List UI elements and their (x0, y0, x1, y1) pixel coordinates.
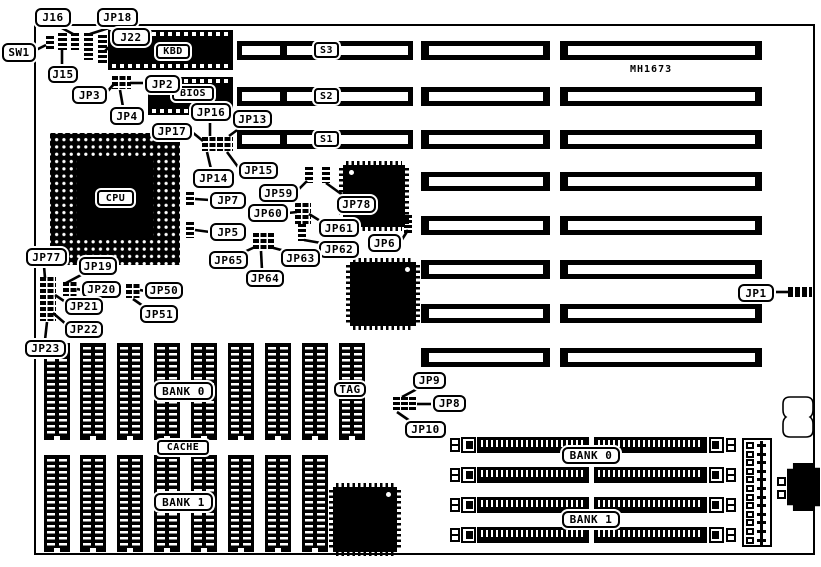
slot-label-s3: S3 (314, 42, 339, 58)
callout-jp65: JP65 (209, 251, 248, 269)
simm-3-end-right (726, 498, 736, 512)
sw1-switch (46, 36, 54, 49)
latch-hook (466, 501, 473, 509)
simm-bank0-label: BANK 0 (562, 447, 620, 464)
callout-jp22: JP22 (65, 321, 103, 338)
callout-jp63: JP63 (281, 249, 320, 267)
callout-jp23: JP23 (25, 340, 66, 357)
dip-notch (164, 548, 170, 552)
callout-jp3: JP3 (72, 86, 107, 104)
dip-notch (238, 548, 244, 552)
power-pin-socket (746, 502, 754, 509)
motherboard-diagram: MH1673 KBD BIOS CPU BANK 0 TAG CACHE BAN… (0, 0, 821, 567)
din-tab-lower (777, 490, 786, 499)
keyboard-din-connector (787, 463, 820, 511)
power-pin-socket (746, 476, 754, 483)
callout-jp8: JP8 (433, 395, 466, 412)
slot-window (242, 135, 280, 144)
callout-jp9: JP9 (413, 372, 446, 389)
simm-2-contacts-b (594, 467, 707, 483)
jp78-jumper (322, 167, 330, 183)
cache-bank0-label: BANK 0 (154, 382, 213, 400)
slot-window (242, 92, 280, 101)
callout-jp18: JP18 (97, 8, 138, 27)
jp50-jp51-block (126, 284, 140, 298)
isa-slot-row2-b (421, 87, 550, 106)
slot-window (568, 135, 755, 144)
qfp-pins-top (336, 483, 394, 487)
kbd-chip-pins-bottom (112, 64, 229, 68)
callout-jp19: JP19 (79, 257, 117, 275)
callout-jp61: JP61 (319, 219, 359, 237)
cache-dip-socket-bank1-1 (44, 455, 70, 552)
slot-window (287, 135, 408, 144)
simm-2-latch-right (709, 467, 724, 483)
power-pin-socket (746, 537, 754, 544)
jp62-tail (298, 224, 306, 241)
simm-2-end-left (450, 468, 460, 482)
callout-jp20: JP20 (82, 281, 121, 298)
cache-dip-socket-bank0-8 (302, 343, 328, 440)
callout-jp77: JP77 (26, 248, 67, 266)
callout-sw1: SW1 (2, 43, 36, 62)
slot-label-s1: S1 (314, 131, 339, 147)
callout-j22: J22 (112, 28, 150, 46)
qfp-chip-2 (350, 262, 416, 326)
latch-hook (466, 531, 473, 539)
jp59-jumper (305, 167, 313, 183)
callout-jp7: JP7 (210, 192, 246, 209)
jp10-jumper (409, 397, 416, 412)
cache-dip-socket-bank1-7 (265, 455, 291, 552)
callout-jp4: JP4 (110, 107, 144, 125)
cache-tag-label: TAG (334, 382, 366, 397)
j22-header (98, 35, 107, 63)
isa-slot-row4-c (560, 172, 762, 191)
slot-window (568, 92, 755, 101)
simm-bank1-label: BANK 1 (562, 511, 620, 528)
cache-dip-socket-bank1-2 (80, 455, 106, 552)
simm-1-end-right (726, 438, 736, 452)
power-pin-socket (746, 528, 754, 535)
power-pin-socket (746, 485, 754, 492)
cache-dip-socket-bank1-3 (117, 455, 143, 552)
callout-jp5: JP5 (210, 223, 246, 241)
slot-window (429, 309, 543, 318)
isa-slot-row8-c (560, 348, 762, 367)
jp2-jp3-jp4-block (112, 76, 131, 89)
callout-jp1: JP1 (738, 284, 774, 302)
simm-4-end-right (726, 528, 736, 542)
simm-3-end-left (450, 498, 460, 512)
slot-window (287, 46, 408, 55)
callout-jp60: JP60 (248, 204, 288, 222)
simm-2-end-right (726, 468, 736, 482)
isa-slot-row5-b (421, 216, 550, 235)
isa-slot-row4-b (421, 172, 550, 191)
simm-3-latch-left (461, 497, 476, 513)
power-pin-socket (746, 468, 754, 475)
cache-label: CACHE (157, 440, 209, 455)
qfp-pins-top (346, 161, 402, 165)
slot-window (429, 92, 543, 101)
callout-jp62: JP62 (319, 241, 359, 258)
simm-2-latch-left (461, 467, 476, 483)
simm-2-contacts-a (477, 467, 589, 483)
slot-window (429, 177, 543, 186)
isa-slot-row3-b (421, 130, 550, 149)
kbd-chip-label: KBD (156, 44, 190, 59)
jp8-jumper (401, 397, 408, 412)
isa-slot-row7-c (560, 304, 762, 323)
jp14-jp17-block (202, 137, 233, 151)
isa-slot-row3-c (560, 130, 762, 149)
jp60-jp61-block (295, 203, 311, 224)
j15-header (58, 33, 67, 50)
simm-4-latch-right (709, 527, 724, 543)
dip-notch (90, 548, 96, 552)
simm-4-latch-left (461, 527, 476, 543)
qfp-pins-right (397, 490, 401, 549)
qfp-pins-left (346, 265, 350, 323)
simm-3-latch-right (709, 497, 724, 513)
dip-notch (312, 548, 318, 552)
latch-hook (712, 531, 719, 539)
callout-jp10: JP10 (405, 421, 446, 438)
jp7-jumper (186, 192, 194, 207)
slot-window (568, 46, 755, 55)
din-tab-upper (777, 477, 786, 486)
qfp-pin1-dot (349, 170, 354, 175)
jp18-header (84, 33, 93, 60)
isa-slot-row2-c (560, 87, 762, 106)
qfp-pins-left (329, 490, 333, 549)
jp63-jp65-block (253, 233, 274, 249)
simm-4-end-left (450, 528, 460, 542)
qfp-pins-top (353, 258, 413, 262)
slot-window (429, 265, 543, 274)
cache-bank1-label: BANK 1 (154, 493, 213, 511)
callout-j16: J16 (35, 8, 71, 27)
slot-window (429, 46, 543, 55)
slot-window (568, 309, 755, 318)
simm-4-contacts-b (594, 527, 707, 543)
dip-notch (349, 436, 355, 440)
board-model-label: MH1673 (630, 64, 692, 75)
cache-dip-socket-bank0-6 (228, 343, 254, 440)
power-pin-socket (746, 451, 754, 458)
callout-jp16: JP16 (191, 103, 231, 121)
slot-window (429, 221, 543, 230)
callout-jp14: JP14 (193, 169, 234, 188)
slot-window (568, 177, 755, 186)
latch-hook (466, 441, 473, 449)
simm-1-latch-right (709, 437, 724, 453)
callout-jp64: JP64 (246, 270, 284, 287)
slot-window (429, 353, 543, 362)
dip-notch (127, 436, 133, 440)
callout-jp15: JP15 (239, 162, 278, 179)
callout-jp17: JP17 (152, 123, 192, 140)
cpu-label: CPU (97, 190, 134, 206)
power-pin-cross (757, 536, 766, 545)
isa-slot-row5-c (560, 216, 762, 235)
dip-notch (238, 436, 244, 440)
jp5-jumper (186, 222, 194, 238)
callout-j15: J15 (48, 66, 78, 83)
qfp-pins-bottom (336, 552, 394, 556)
power-pin-socket (746, 459, 754, 466)
cache-dip-socket-bank0-7 (265, 343, 291, 440)
qfp-pins-bottom (353, 326, 413, 330)
isa-slot-row7-b (421, 304, 550, 323)
jp77-block (40, 277, 56, 321)
cache-dip-socket-bank0-3 (117, 343, 143, 440)
qfp-pin1-dot (405, 267, 410, 272)
jp9-jumper (393, 397, 400, 412)
latch-hook (466, 471, 473, 479)
slot-window (242, 46, 280, 55)
cache-dip-socket-bank1-8 (302, 455, 328, 552)
slot-label-s2: S2 (314, 88, 339, 104)
jp1-jumper (788, 287, 812, 297)
qfp-chip-3 (333, 487, 397, 552)
dip-notch (54, 548, 60, 552)
jp19-jp20-block (63, 282, 77, 296)
callout-jp78: JP78 (337, 196, 376, 213)
callout-jp51: JP51 (140, 305, 178, 323)
isa-slot-row1-b (421, 41, 550, 60)
power-pin-socket (746, 442, 754, 449)
qfp-pins-right (405, 168, 409, 224)
latch-hook (712, 441, 719, 449)
power-pin-socket (746, 494, 754, 501)
callout-jp13: JP13 (233, 110, 272, 128)
callout-jp59: JP59 (259, 184, 298, 202)
simm-1-end-left (450, 438, 460, 452)
isa-slot-row1-c (560, 41, 762, 60)
callout-jp2: JP2 (145, 75, 180, 93)
isa-slot-row8-b (421, 348, 550, 367)
isa-slot-row6-b (421, 260, 550, 279)
latch-hook (712, 471, 719, 479)
latch-hook (712, 501, 719, 509)
cache-dip-socket-bank1-6 (228, 455, 254, 552)
slot-window (568, 353, 755, 362)
dip-notch (275, 436, 281, 440)
isa-slot-row6-c (560, 260, 762, 279)
callout-jp6: JP6 (368, 234, 401, 252)
slot-window (287, 92, 408, 101)
slot-window (568, 265, 755, 274)
dip-notch (90, 436, 96, 440)
simm-1-latch-left (461, 437, 476, 453)
dip-notch (201, 548, 207, 552)
qfp-pin1-dot (386, 492, 391, 497)
dip-notch (312, 436, 318, 440)
callout-jp21: JP21 (65, 298, 103, 315)
power-pin-socket (746, 519, 754, 526)
qfp-pins-right (416, 265, 420, 323)
callout-jp50: JP50 (145, 282, 183, 299)
j16-header (71, 33, 79, 50)
dip-notch (54, 436, 60, 440)
slot-window (429, 135, 543, 144)
dip-notch (127, 548, 133, 552)
simm-4-contacts-a (477, 527, 589, 543)
cache-dip-socket-bank0-2 (80, 343, 106, 440)
dip-notch (275, 548, 281, 552)
cache-dip-socket-bank0-1 (44, 343, 70, 440)
slot-window (568, 221, 755, 230)
power-pin-socket (746, 511, 754, 518)
